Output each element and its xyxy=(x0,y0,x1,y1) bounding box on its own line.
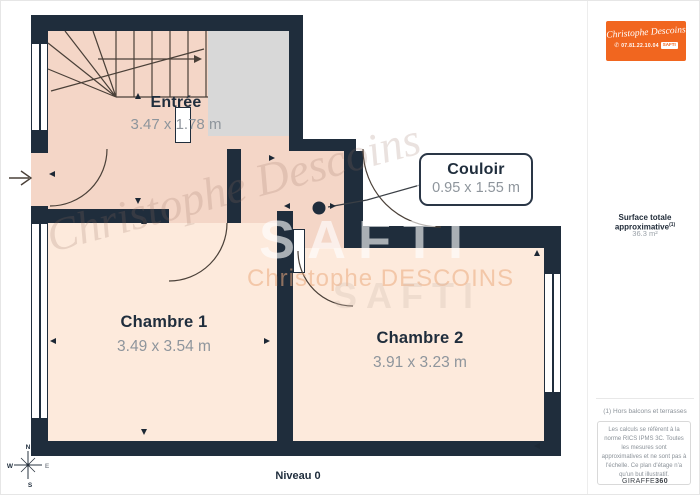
brand-text: GIRAFFE xyxy=(622,478,655,485)
dim-arrow-icon xyxy=(264,338,270,344)
dim-arrow-icon xyxy=(269,155,275,161)
phone-icon: ✆ xyxy=(614,42,619,49)
floorplan-page: N W S E Christophe Descoins SAFTI Christ… xyxy=(0,0,700,495)
dim-arrow-icon xyxy=(135,198,141,204)
dim-arrow-icon xyxy=(141,429,147,435)
couloir-label: Couloir xyxy=(421,161,531,179)
level-label: Niveau 0 xyxy=(253,470,343,482)
compass-e-label: E xyxy=(45,463,50,470)
compass-n-label: N xyxy=(26,444,31,451)
entree-label: Entrée xyxy=(101,94,251,112)
chambre1-label: Chambre 1 xyxy=(79,313,249,332)
legal-disclaimer: Les calculs se réfèrent à la norme RICS … xyxy=(597,421,691,485)
safti-badge: SAFTI xyxy=(661,42,678,49)
agent-logo-signature: Christophe Descoins xyxy=(606,25,687,41)
surface-title-sup: (1) xyxy=(669,222,675,228)
couloir-leader xyxy=(313,185,421,215)
couloir-dot xyxy=(313,202,326,215)
entree-dims: 3.47 x 1.78 m xyxy=(96,116,256,133)
agent-phone: 07.81.22.10.04 xyxy=(621,43,659,49)
chambre2-label: Chambre 2 xyxy=(335,329,505,348)
dim-arrow-icon xyxy=(284,203,290,209)
plan-linework: N W S E xyxy=(1,1,587,495)
sidebar: Christophe Descoins ✆ 07.81.22.10.04 SAF… xyxy=(587,1,700,495)
couloir-dims: 0.95 x 1.55 m xyxy=(421,180,531,196)
compass-w-label: W xyxy=(7,463,14,470)
door-arc-chambre1 xyxy=(169,223,227,281)
chambre2-dims: 3.91 x 3.23 m xyxy=(335,354,505,372)
couloir-callout: Couloir 0.95 x 1.55 m xyxy=(419,153,533,206)
dim-arrow-icon xyxy=(534,250,540,256)
door-arc-chambre2 xyxy=(298,251,353,306)
compass-icon xyxy=(14,451,42,479)
giraffe360-brand: GIRAFFE360 xyxy=(588,478,700,485)
sidebar-divider xyxy=(596,398,694,399)
dim-arrow-icon xyxy=(330,203,336,209)
brand-suffix: 360 xyxy=(655,478,668,485)
staircase xyxy=(48,31,208,97)
compass-s-label: S xyxy=(28,482,33,489)
surface-value: 36.3 m² xyxy=(588,229,700,238)
dim-arrow-icon xyxy=(141,218,147,224)
dim-arrow-icon xyxy=(50,338,56,344)
door-arc-entry xyxy=(50,149,107,206)
footnote: (1) Hors balcons et terrasses xyxy=(588,408,700,415)
chambre1-dims: 3.49 x 3.54 m xyxy=(79,338,249,356)
agent-logo: Christophe Descoins ✆ 07.81.22.10.04 SAF… xyxy=(606,21,686,61)
dim-arrow-icon xyxy=(49,171,55,177)
dim-arrow-icon xyxy=(534,443,540,449)
entry-arrow-icon xyxy=(9,171,31,185)
